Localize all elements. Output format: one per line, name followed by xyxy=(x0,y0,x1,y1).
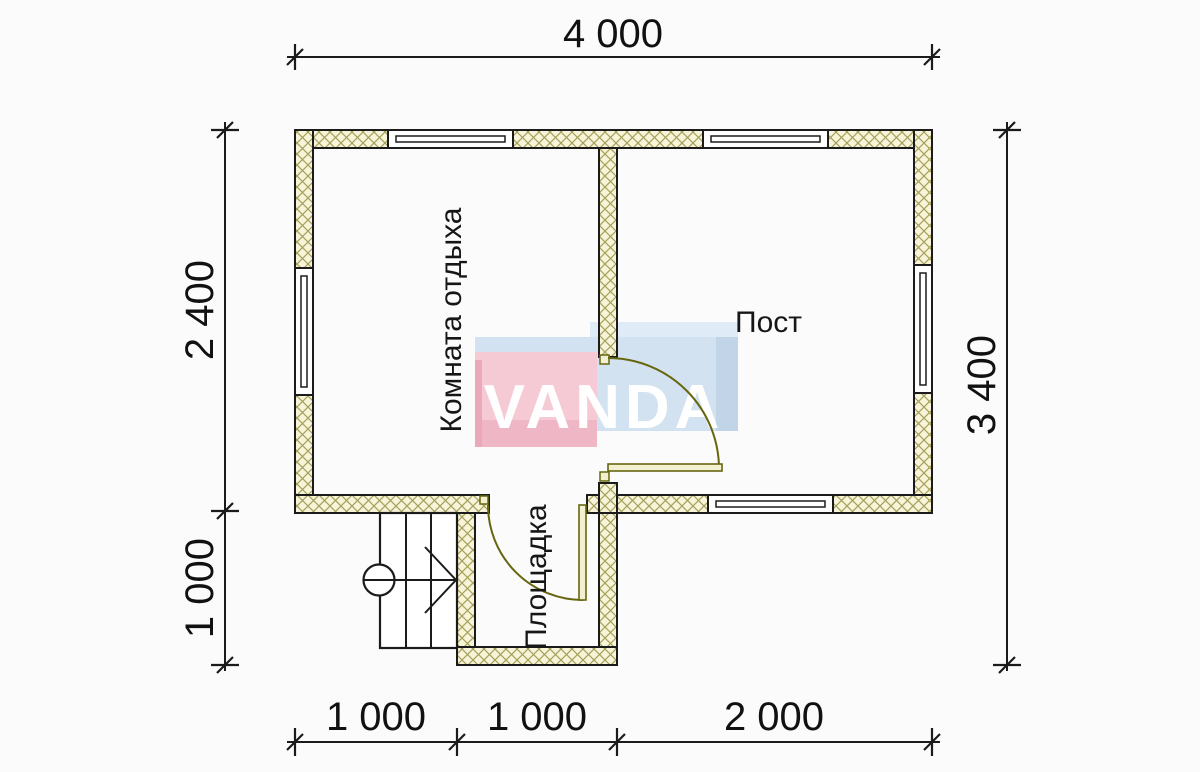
interior-door-jamb-top xyxy=(600,355,609,364)
porch-left-wall xyxy=(457,513,475,665)
floor-plan-page: VANDA xyxy=(0,0,1200,772)
dim-right-label: 3 400 xyxy=(960,335,1004,435)
window-top-right xyxy=(703,130,828,148)
logo-pink-left-edge xyxy=(475,360,482,447)
bottom-wall-left-segment xyxy=(295,495,489,513)
window-left xyxy=(295,268,313,395)
window-bottom xyxy=(708,495,833,513)
logo-text: VANDA xyxy=(484,373,725,442)
dim-top-label: 4 000 xyxy=(563,12,663,56)
porch-right-wall xyxy=(599,513,617,665)
dim-bottom-right-label: 2 000 xyxy=(724,695,824,739)
entry-door-leaf xyxy=(579,505,586,600)
window-top-left xyxy=(388,130,513,148)
window-right xyxy=(914,265,932,393)
dim-left-lower-label: 1 000 xyxy=(178,538,222,638)
room-label-rest-room: Комната отдыха xyxy=(435,207,468,432)
room-label-landing: Площадка xyxy=(520,504,553,650)
entry-door-jamb xyxy=(480,496,488,504)
dim-left-upper-label: 2 400 xyxy=(178,260,222,360)
interior-wall-upper xyxy=(599,148,617,357)
floor-plan-svg: VANDA xyxy=(0,0,1200,772)
dim-bottom-middle-label: 1 000 xyxy=(487,695,587,739)
interior-door-jamb-bottom xyxy=(600,472,609,481)
room-label-post: Пост xyxy=(735,306,802,339)
interior-door-leaf xyxy=(608,464,722,471)
interior-wall-lower xyxy=(599,483,617,513)
dim-bottom-left-label: 1 000 xyxy=(326,695,426,739)
